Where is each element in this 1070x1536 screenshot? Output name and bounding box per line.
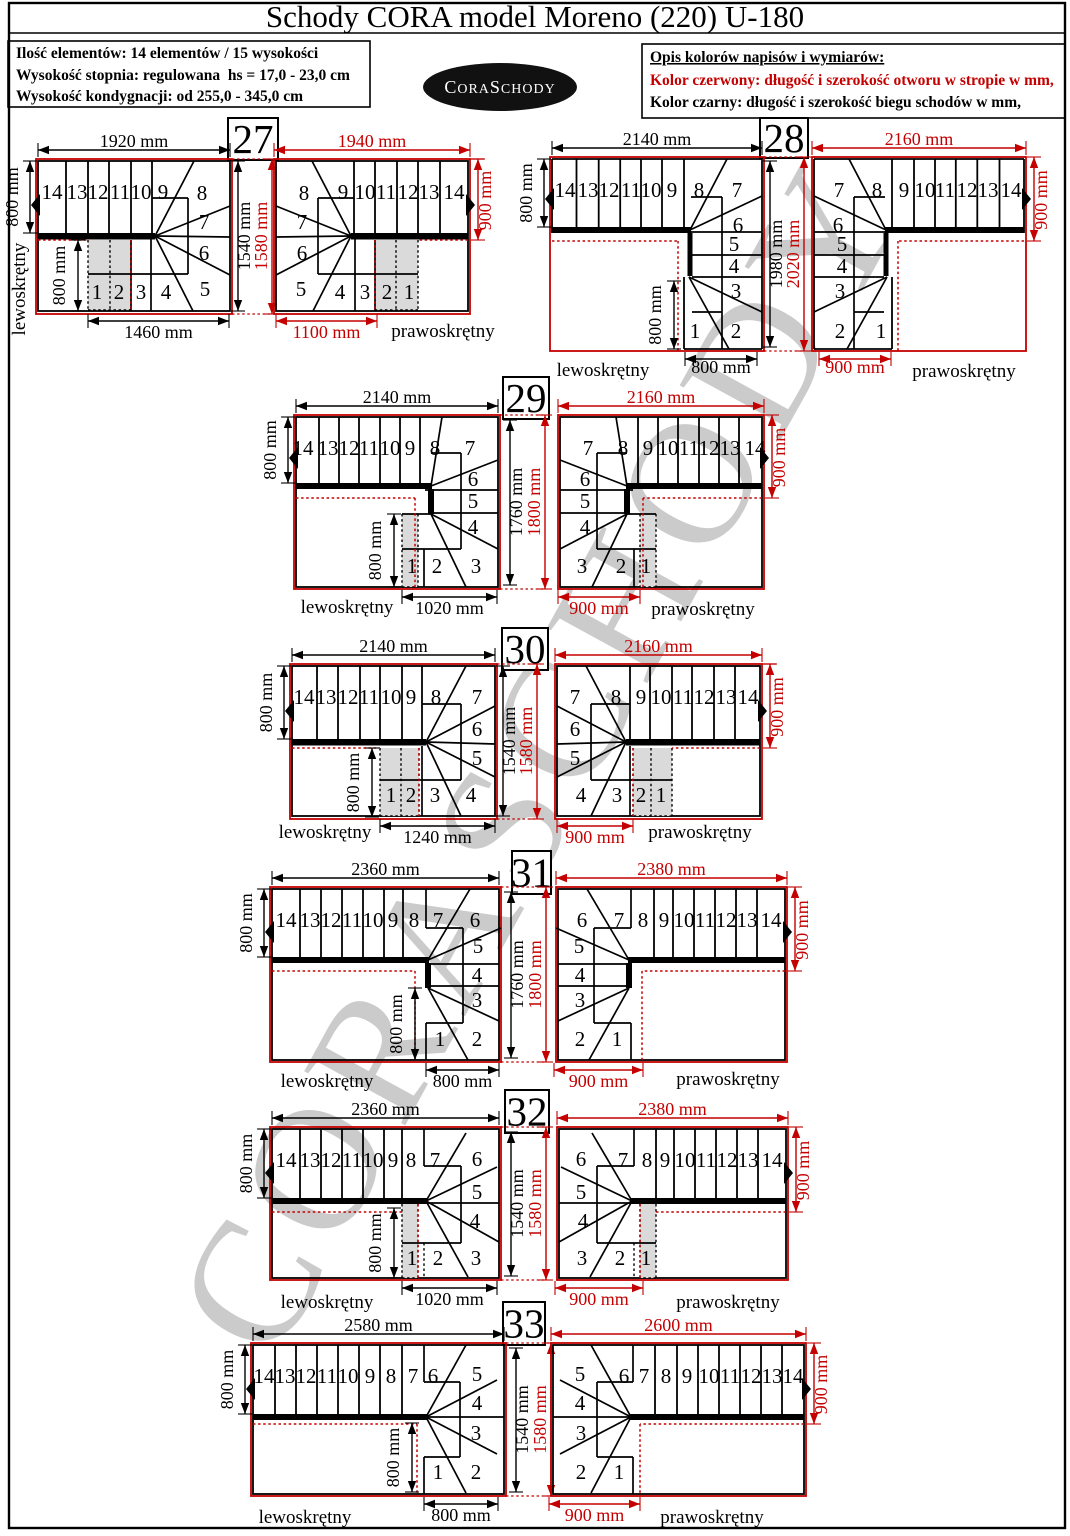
svg-text:800 mm: 800 mm	[645, 285, 665, 345]
svg-text:Kolor czerwony: długość i szer: Kolor czerwony: długość i szerokość otwo…	[650, 72, 1054, 89]
svg-text:2: 2	[616, 554, 627, 578]
svg-text:13: 13	[318, 436, 339, 460]
svg-text:12: 12	[599, 178, 620, 202]
svg-text:29: 29	[506, 375, 547, 421]
svg-text:13: 13	[720, 436, 741, 460]
svg-text:1: 1	[433, 1460, 444, 1484]
svg-text:4: 4	[578, 1209, 589, 1233]
svg-text:14: 14	[254, 1364, 276, 1388]
svg-text:Kolor czarny: długość i szerok: Kolor czarny: długość i szerokość biegu …	[650, 94, 1021, 111]
svg-text:10: 10	[131, 180, 152, 204]
svg-text:5: 5	[575, 1362, 586, 1386]
svg-text:11: 11	[376, 180, 396, 204]
svg-text:5: 5	[570, 746, 581, 770]
svg-text:7: 7	[199, 210, 210, 234]
svg-text:2020 mm: 2020 mm	[783, 220, 803, 289]
svg-text:9: 9	[667, 178, 678, 202]
svg-text:12: 12	[88, 180, 109, 204]
svg-text:1580 mm: 1580 mm	[516, 707, 536, 776]
svg-text:1: 1	[407, 1246, 418, 1270]
svg-text:8: 8	[430, 436, 441, 460]
svg-text:7: 7	[408, 1364, 419, 1388]
svg-text:900 mm: 900 mm	[825, 357, 885, 377]
svg-text:13: 13	[67, 180, 88, 204]
svg-text:2140 mm: 2140 mm	[623, 129, 692, 149]
svg-text:6: 6	[577, 908, 588, 932]
svg-text:lewoskrętny: lewoskrętny	[301, 597, 394, 618]
svg-text:12: 12	[296, 1364, 317, 1388]
svg-text:12: 12	[716, 908, 737, 932]
svg-text:1: 1	[435, 1027, 446, 1051]
svg-text:2: 2	[615, 1246, 626, 1270]
svg-text:8: 8	[642, 1148, 653, 1172]
svg-text:lewoskrętny: lewoskrętny	[9, 242, 30, 335]
svg-text:1: 1	[614, 1460, 625, 1484]
svg-text:13: 13	[978, 178, 999, 202]
svg-text:4: 4	[576, 783, 587, 807]
svg-text:13: 13	[716, 685, 737, 709]
svg-text:1460 mm: 1460 mm	[124, 322, 193, 342]
svg-text:10: 10	[363, 908, 384, 932]
svg-text:7: 7	[433, 908, 444, 932]
svg-text:Wysokość stopnia: regulowana: Wysokość stopnia: regulowana hs = 17,0 -…	[16, 67, 350, 84]
svg-text:5: 5	[729, 232, 740, 256]
svg-text:800 mm: 800 mm	[217, 1350, 237, 1410]
svg-text:11: 11	[342, 908, 362, 932]
svg-text:5: 5	[472, 1180, 483, 1204]
svg-text:800 mm: 800 mm	[236, 893, 256, 953]
svg-text:8: 8	[872, 178, 883, 202]
svg-text:10: 10	[675, 1148, 696, 1172]
svg-text:1920 mm: 1920 mm	[100, 131, 169, 151]
svg-text:800 mm: 800 mm	[236, 1134, 256, 1194]
svg-text:lewoskrętny: lewoskrętny	[279, 822, 372, 843]
svg-text:900 mm: 900 mm	[767, 677, 787, 737]
svg-text:1: 1	[404, 280, 415, 304]
svg-text:11: 11	[696, 1148, 716, 1172]
svg-text:4: 4	[335, 280, 346, 304]
svg-text:4: 4	[580, 515, 591, 539]
svg-text:14: 14	[555, 178, 577, 202]
svg-text:14: 14	[293, 436, 315, 460]
svg-text:4: 4	[468, 515, 479, 539]
svg-text:11: 11	[359, 685, 379, 709]
svg-text:1580 mm: 1580 mm	[251, 202, 271, 271]
svg-text:4: 4	[837, 254, 848, 278]
svg-text:900 mm: 900 mm	[569, 598, 629, 618]
svg-text:12: 12	[338, 685, 359, 709]
svg-text:12: 12	[398, 180, 419, 204]
svg-text:prawoskrętny: prawoskrętny	[660, 1507, 764, 1528]
svg-text:1020 mm: 1020 mm	[415, 598, 484, 618]
svg-text:2160 mm: 2160 mm	[627, 387, 696, 407]
svg-text:2360 mm: 2360 mm	[351, 1099, 420, 1119]
svg-text:Wysokość kondygnacji: od 255,0: Wysokość kondygnacji: od 255,0 - 345,0 c…	[16, 88, 303, 105]
svg-text:13: 13	[737, 908, 758, 932]
svg-text:10: 10	[355, 180, 376, 204]
svg-text:14: 14	[762, 1148, 784, 1172]
svg-text:2: 2	[432, 554, 443, 578]
svg-text:10: 10	[338, 1364, 359, 1388]
svg-text:9: 9	[388, 1148, 399, 1172]
svg-text:800 mm: 800 mm	[516, 163, 536, 223]
svg-text:2140 mm: 2140 mm	[363, 387, 432, 407]
svg-text:12: 12	[339, 436, 360, 460]
svg-text:2: 2	[636, 783, 647, 807]
svg-text:2160 mm: 2160 mm	[624, 636, 693, 656]
svg-text:5: 5	[473, 934, 484, 958]
svg-text:800 mm: 800 mm	[2, 167, 22, 227]
svg-text:2: 2	[471, 1460, 482, 1484]
svg-text:3: 3	[430, 783, 441, 807]
svg-text:6: 6	[472, 1147, 483, 1171]
svg-text:7: 7	[465, 436, 476, 460]
svg-text:1760 mm: 1760 mm	[507, 940, 527, 1009]
svg-text:14: 14	[42, 180, 64, 204]
svg-text:900 mm: 900 mm	[792, 900, 812, 960]
svg-text:9: 9	[659, 908, 670, 932]
svg-text:2140 mm: 2140 mm	[359, 636, 428, 656]
svg-text:800 mm: 800 mm	[256, 673, 276, 733]
svg-text:800 mm: 800 mm	[386, 994, 406, 1054]
svg-text:6: 6	[580, 467, 591, 491]
svg-text:12: 12	[699, 436, 720, 460]
svg-text:3: 3	[472, 988, 483, 1012]
svg-text:3: 3	[575, 988, 586, 1012]
svg-text:lewoskrętny: lewoskrętny	[259, 1507, 352, 1528]
svg-text:7: 7	[430, 1148, 441, 1172]
svg-text:9: 9	[899, 178, 910, 202]
svg-text:8: 8	[406, 1148, 417, 1172]
svg-text:2160 mm: 2160 mm	[885, 129, 954, 149]
svg-text:5: 5	[472, 746, 483, 770]
svg-text:8: 8	[299, 181, 310, 205]
svg-text:14: 14	[444, 180, 466, 204]
svg-text:9: 9	[660, 1148, 671, 1172]
svg-text:prawoskrętny: prawoskrętny	[391, 321, 495, 342]
svg-text:1100 mm: 1100 mm	[293, 322, 361, 342]
svg-text:27: 27	[233, 116, 274, 162]
svg-text:3: 3	[360, 280, 371, 304]
svg-text:3: 3	[471, 1246, 482, 1270]
svg-text:9: 9	[682, 1364, 693, 1388]
svg-text:1540 mm: 1540 mm	[507, 1169, 527, 1238]
svg-text:900 mm: 900 mm	[769, 428, 789, 488]
svg-text:1580 mm: 1580 mm	[530, 1385, 550, 1454]
svg-text:800 mm: 800 mm	[691, 357, 751, 377]
svg-text:6: 6	[199, 241, 210, 265]
svg-text:1020 mm: 1020 mm	[415, 1289, 484, 1309]
svg-text:8: 8	[611, 685, 622, 709]
svg-text:33: 33	[504, 1301, 545, 1347]
svg-text:10: 10	[674, 908, 695, 932]
svg-text:1: 1	[641, 554, 652, 578]
svg-text:13: 13	[316, 685, 337, 709]
svg-text:1940 mm: 1940 mm	[338, 131, 407, 151]
svg-text:1760 mm: 1760 mm	[506, 468, 526, 537]
svg-text:prawoskrętny: prawoskrętny	[648, 822, 752, 843]
svg-text:1: 1	[876, 319, 887, 343]
svg-text:5: 5	[200, 277, 211, 301]
svg-text:12: 12	[717, 1148, 738, 1172]
svg-text:1: 1	[612, 1027, 623, 1051]
svg-text:11: 11	[720, 1364, 740, 1388]
svg-text:12: 12	[741, 1364, 762, 1388]
svg-text:1800 mm: 1800 mm	[525, 940, 545, 1009]
svg-text:1: 1	[386, 783, 397, 807]
svg-text:1800 mm: 1800 mm	[524, 468, 544, 537]
svg-text:900 mm: 900 mm	[565, 1505, 625, 1525]
svg-text:9: 9	[365, 1364, 376, 1388]
svg-text:30: 30	[505, 626, 546, 672]
svg-text:13: 13	[419, 180, 440, 204]
svg-text:8: 8	[618, 436, 629, 460]
svg-text:11: 11	[935, 178, 955, 202]
svg-text:4: 4	[575, 963, 586, 987]
svg-text:10: 10	[915, 178, 936, 202]
svg-text:900 mm: 900 mm	[1031, 170, 1051, 230]
svg-text:13: 13	[275, 1364, 296, 1388]
svg-text:4: 4	[466, 783, 477, 807]
svg-text:900 mm: 900 mm	[475, 171, 495, 231]
svg-text:14: 14	[738, 685, 760, 709]
svg-text:3: 3	[471, 554, 482, 578]
svg-text:5: 5	[576, 1180, 587, 1204]
svg-text:4: 4	[470, 1209, 481, 1233]
svg-text:2380 mm: 2380 mm	[637, 859, 706, 879]
svg-text:4: 4	[161, 280, 172, 304]
svg-text:1240 mm: 1240 mm	[403, 827, 472, 847]
svg-text:6: 6	[576, 1147, 587, 1171]
svg-text:7: 7	[618, 1148, 629, 1172]
svg-text:6: 6	[570, 717, 581, 741]
svg-text:5: 5	[574, 934, 585, 958]
svg-text:2: 2	[835, 319, 846, 343]
svg-text:8: 8	[638, 908, 649, 932]
svg-text:9: 9	[406, 685, 417, 709]
svg-text:1: 1	[407, 554, 418, 578]
svg-text:6: 6	[470, 908, 481, 932]
svg-text:6: 6	[468, 467, 479, 491]
svg-text:2: 2	[472, 1027, 483, 1051]
svg-text:3: 3	[136, 280, 147, 304]
svg-text:14: 14	[1001, 178, 1023, 202]
svg-text:lewoskrętny: lewoskrętny	[557, 360, 650, 381]
svg-text:4: 4	[472, 963, 483, 987]
svg-text:3: 3	[577, 554, 588, 578]
svg-text:12: 12	[321, 908, 342, 932]
svg-text:13: 13	[300, 1148, 321, 1172]
svg-text:14: 14	[783, 1364, 805, 1388]
svg-text:3: 3	[576, 1421, 587, 1445]
svg-text:800 mm: 800 mm	[49, 246, 69, 306]
svg-text:11: 11	[342, 1148, 362, 1172]
svg-text:2: 2	[114, 280, 125, 304]
svg-text:9: 9	[636, 685, 647, 709]
svg-text:3: 3	[731, 279, 742, 303]
svg-text:11: 11	[621, 178, 641, 202]
svg-text:7: 7	[297, 210, 308, 234]
svg-text:14: 14	[276, 1148, 298, 1172]
svg-text:11: 11	[673, 685, 693, 709]
svg-text:4: 4	[729, 254, 740, 278]
svg-text:Schody CORA model Moreno (220): Schody CORA model Moreno (220) U-180	[266, 0, 804, 34]
svg-text:5: 5	[472, 1362, 483, 1386]
svg-text:2: 2	[433, 1246, 444, 1270]
svg-text:lewoskrętny: lewoskrętny	[281, 1292, 374, 1313]
svg-text:800 mm: 800 mm	[431, 1505, 491, 1525]
svg-text:10: 10	[651, 685, 672, 709]
svg-text:7: 7	[732, 178, 743, 202]
svg-text:11: 11	[359, 436, 379, 460]
svg-text:9: 9	[643, 436, 654, 460]
svg-text:9: 9	[405, 436, 416, 460]
svg-text:900 mm: 900 mm	[811, 1355, 831, 1415]
svg-text:5: 5	[580, 489, 591, 513]
svg-text:800 mm: 800 mm	[343, 753, 363, 813]
svg-text:14: 14	[761, 908, 783, 932]
svg-text:2360 mm: 2360 mm	[351, 859, 420, 879]
svg-text:Opis kolorów napisów i wymiaró: Opis kolorów napisów i wymiarów:	[650, 49, 884, 66]
svg-text:7: 7	[583, 436, 594, 460]
svg-text:13: 13	[762, 1364, 783, 1388]
svg-text:13: 13	[738, 1148, 759, 1172]
svg-text:10: 10	[381, 685, 402, 709]
svg-text:900 mm: 900 mm	[565, 827, 625, 847]
svg-text:5: 5	[837, 232, 848, 256]
svg-text:12: 12	[694, 685, 715, 709]
svg-text:5: 5	[468, 489, 479, 513]
svg-text:6: 6	[472, 717, 483, 741]
svg-text:11: 11	[679, 436, 699, 460]
svg-text:10: 10	[699, 1364, 720, 1388]
svg-text:1: 1	[690, 319, 701, 343]
svg-text:10: 10	[363, 1148, 384, 1172]
svg-text:3: 3	[471, 1421, 482, 1445]
svg-text:2: 2	[406, 783, 417, 807]
svg-text:prawoskrętny: prawoskrętny	[676, 1292, 780, 1313]
svg-text:800 mm: 800 mm	[365, 1213, 385, 1273]
svg-text:1580 mm: 1580 mm	[525, 1169, 545, 1238]
svg-text:Ilość elementów: 14 elementów: Ilość elementów: 14 elementów / 15 wysok…	[16, 45, 319, 62]
svg-text:800 mm: 800 mm	[383, 1428, 403, 1488]
svg-text:8: 8	[409, 908, 420, 932]
svg-text:800 mm: 800 mm	[365, 521, 385, 581]
svg-text:8: 8	[431, 685, 442, 709]
svg-text:4: 4	[575, 1391, 586, 1415]
svg-text:2380 mm: 2380 mm	[638, 1099, 707, 1119]
svg-text:12: 12	[957, 178, 978, 202]
svg-text:900 mm: 900 mm	[569, 1289, 629, 1309]
svg-text:7: 7	[570, 685, 581, 709]
svg-text:9: 9	[338, 180, 349, 204]
svg-text:7: 7	[472, 685, 483, 709]
svg-text:900 mm: 900 mm	[569, 1071, 629, 1091]
svg-text:lewoskrętny: lewoskrętny	[281, 1071, 374, 1092]
svg-text:7: 7	[614, 908, 625, 932]
svg-text:prawoskrętny: prawoskrętny	[651, 599, 755, 620]
svg-text:11: 11	[695, 908, 715, 932]
svg-text:1540 mm: 1540 mm	[512, 1385, 532, 1454]
svg-text:6: 6	[428, 1364, 439, 1388]
svg-text:4: 4	[472, 1391, 483, 1415]
svg-text:7: 7	[639, 1364, 650, 1388]
svg-text:14: 14	[745, 436, 767, 460]
svg-text:2: 2	[382, 280, 393, 304]
svg-text:13: 13	[300, 908, 321, 932]
svg-text:1: 1	[641, 1246, 652, 1270]
svg-text:7: 7	[834, 178, 845, 202]
svg-text:6: 6	[619, 1364, 630, 1388]
svg-text:11: 11	[317, 1364, 337, 1388]
svg-text:2: 2	[576, 1460, 587, 1484]
svg-text:12: 12	[321, 1148, 342, 1172]
svg-text:2: 2	[731, 319, 742, 343]
svg-text:6: 6	[297, 241, 308, 265]
svg-text:3: 3	[577, 1246, 588, 1270]
svg-text:10: 10	[641, 178, 662, 202]
svg-text:2: 2	[575, 1027, 586, 1051]
svg-text:9: 9	[388, 908, 399, 932]
svg-text:14: 14	[276, 908, 298, 932]
svg-text:11: 11	[110, 180, 130, 204]
svg-text:2600 mm: 2600 mm	[644, 1315, 713, 1335]
svg-text:800 mm: 800 mm	[260, 420, 280, 480]
svg-text:900 mm: 900 mm	[793, 1141, 813, 1201]
svg-text:3: 3	[612, 783, 623, 807]
svg-text:prawoskrętny: prawoskrętny	[676, 1069, 780, 1090]
svg-text:28: 28	[764, 115, 805, 161]
svg-text:2580 mm: 2580 mm	[344, 1315, 413, 1335]
svg-text:1: 1	[92, 280, 103, 304]
svg-text:8: 8	[197, 181, 208, 205]
svg-text:14: 14	[294, 685, 316, 709]
svg-text:8: 8	[694, 178, 705, 202]
svg-text:3: 3	[835, 279, 846, 303]
svg-text:1: 1	[656, 783, 667, 807]
svg-text:8: 8	[661, 1364, 672, 1388]
svg-text:10: 10	[658, 436, 679, 460]
svg-text:800 mm: 800 mm	[433, 1071, 493, 1091]
svg-text:9: 9	[158, 180, 169, 204]
svg-text:8: 8	[386, 1364, 397, 1388]
svg-text:10: 10	[380, 436, 401, 460]
svg-text:5: 5	[296, 277, 307, 301]
svg-text:prawoskrętny: prawoskrętny	[912, 361, 1016, 382]
svg-text:13: 13	[578, 178, 599, 202]
